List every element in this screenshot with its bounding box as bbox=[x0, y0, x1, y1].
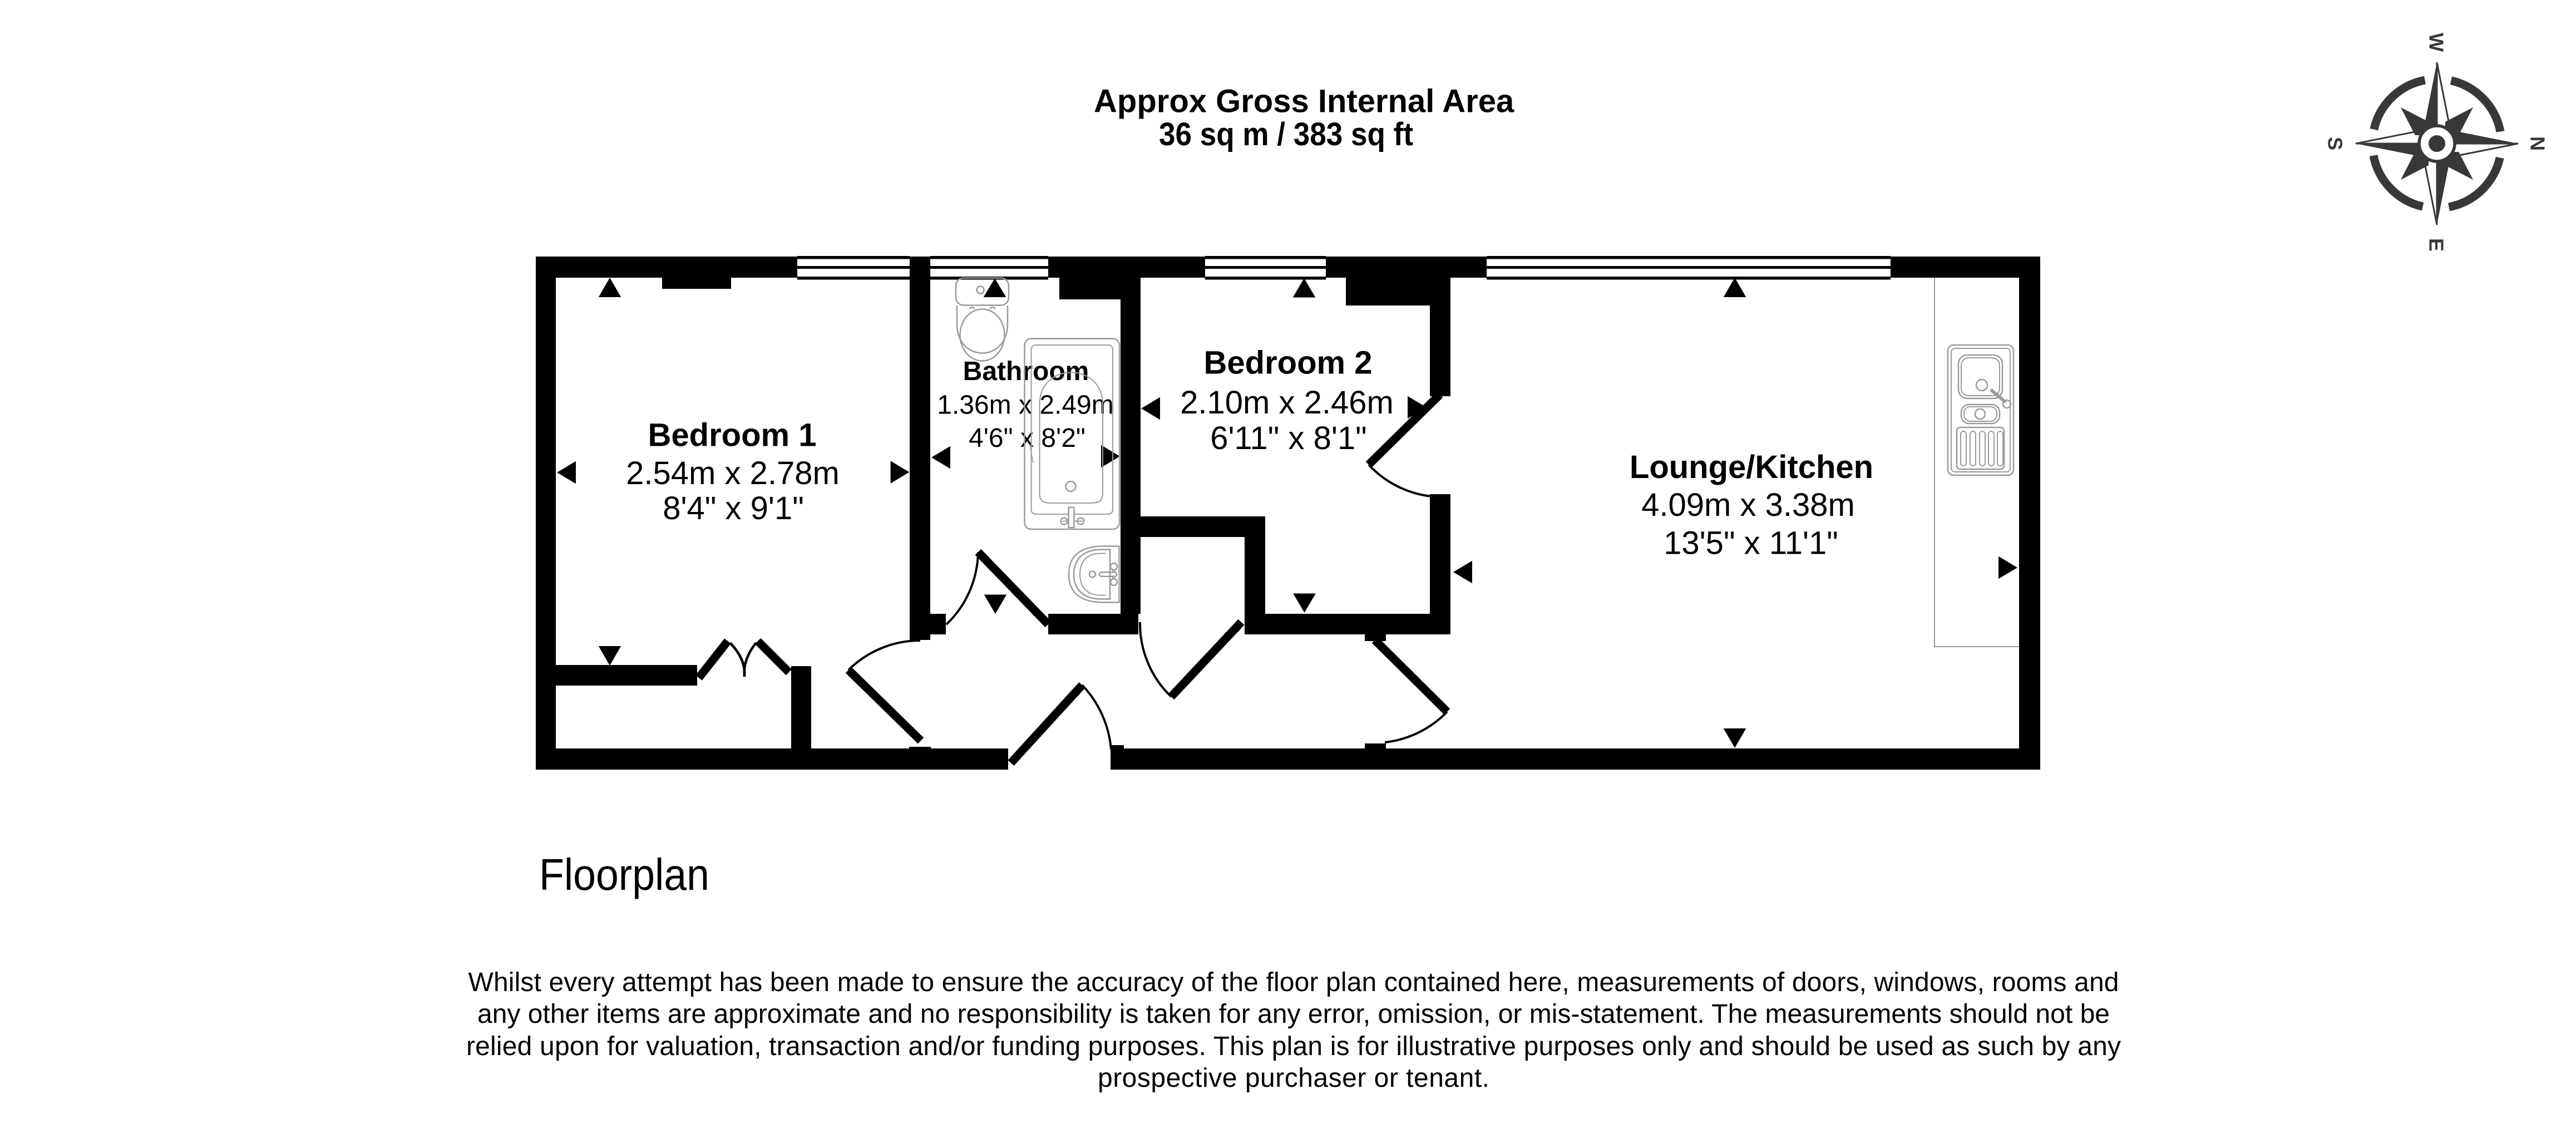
svg-text:13'5" x 11'1": 13'5" x 11'1" bbox=[1664, 525, 1838, 561]
svg-text:Lounge/Kitchen: Lounge/Kitchen bbox=[1630, 449, 1873, 485]
svg-text:2.10m x 2.46m: 2.10m x 2.46m bbox=[1180, 385, 1394, 421]
svg-text:Bedroom 2: Bedroom 2 bbox=[1204, 345, 1373, 381]
svg-text:36 sq m / 383 sq ft: 36 sq m / 383 sq ft bbox=[1159, 116, 1413, 152]
svg-text:4.09m x 3.38m: 4.09m x 3.38m bbox=[1641, 487, 1855, 523]
svg-text:Whilst every attempt has been: Whilst every attempt has been made to en… bbox=[468, 968, 2119, 997]
svg-text:W: W bbox=[2425, 33, 2448, 52]
svg-text:S: S bbox=[2324, 137, 2347, 150]
svg-text:prospective purchaser or tenan: prospective purchaser or tenant. bbox=[1098, 1063, 1489, 1093]
svg-text:E: E bbox=[2425, 238, 2448, 252]
svg-text:Bedroom 1: Bedroom 1 bbox=[648, 417, 817, 454]
svg-text:6'11" x 8'1": 6'11" x 8'1" bbox=[1210, 420, 1367, 456]
svg-text:2.54m x 2.78m: 2.54m x 2.78m bbox=[626, 455, 840, 491]
svg-text:4'6" x 8'2": 4'6" x 8'2" bbox=[969, 423, 1085, 453]
svg-text:Approx Gross Internal Area: Approx Gross Internal Area bbox=[1094, 83, 1514, 120]
svg-text:1.36m x 2.49m: 1.36m x 2.49m bbox=[937, 391, 1113, 420]
svg-text:Floorplan: Floorplan bbox=[539, 850, 709, 899]
svg-text:relied upon for valuation, tra: relied upon for valuation, transaction a… bbox=[466, 1032, 2121, 1061]
svg-text:N: N bbox=[2526, 136, 2549, 151]
svg-text:8'4" x 9'1": 8'4" x 9'1" bbox=[663, 490, 804, 526]
svg-text:any other items are approximat: any other items are approximate and no r… bbox=[477, 999, 2110, 1029]
